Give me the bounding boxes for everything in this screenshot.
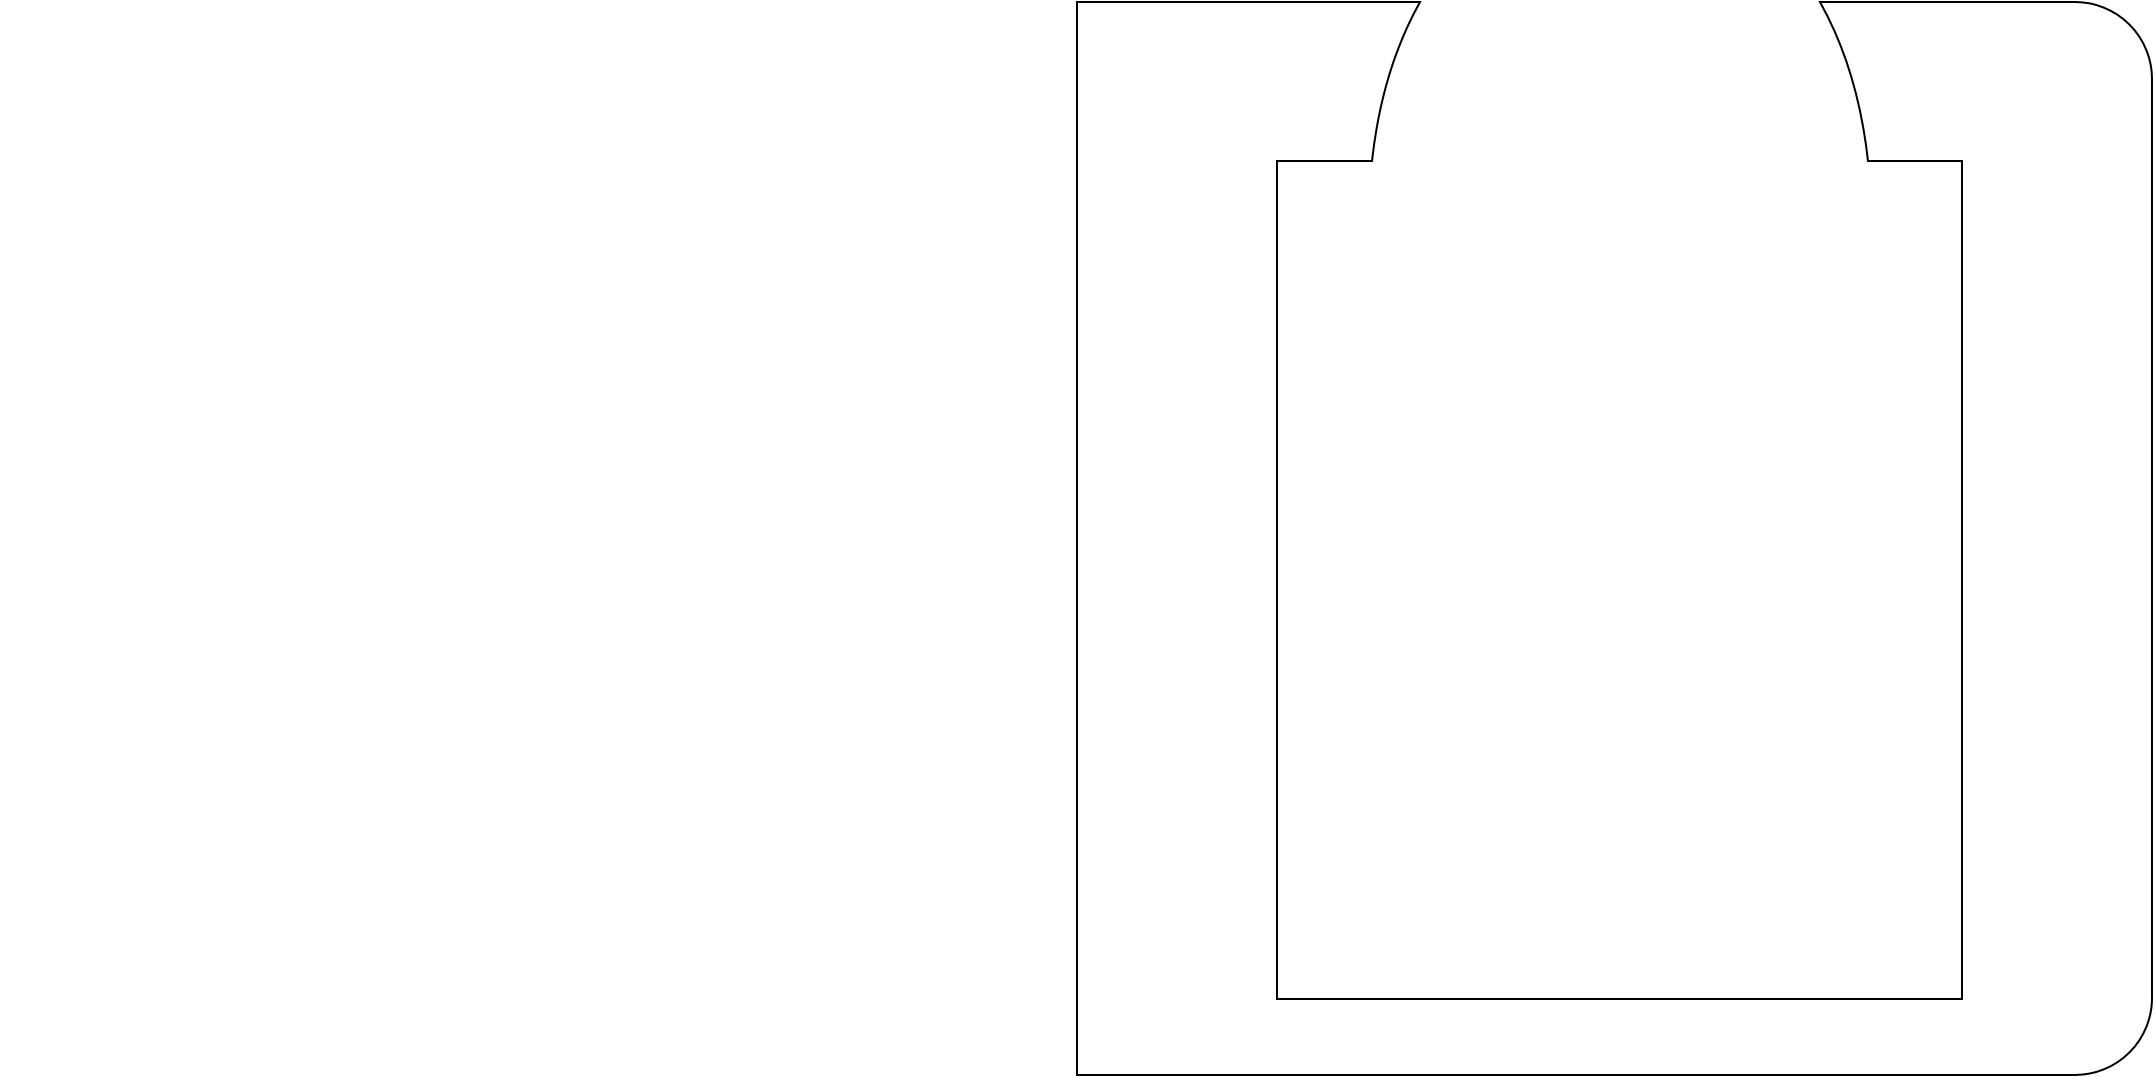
drawing-canvas <box>0 0 2154 1077</box>
profile-outline-path <box>1077 2 2152 1075</box>
vector-drawing <box>0 0 2154 1077</box>
